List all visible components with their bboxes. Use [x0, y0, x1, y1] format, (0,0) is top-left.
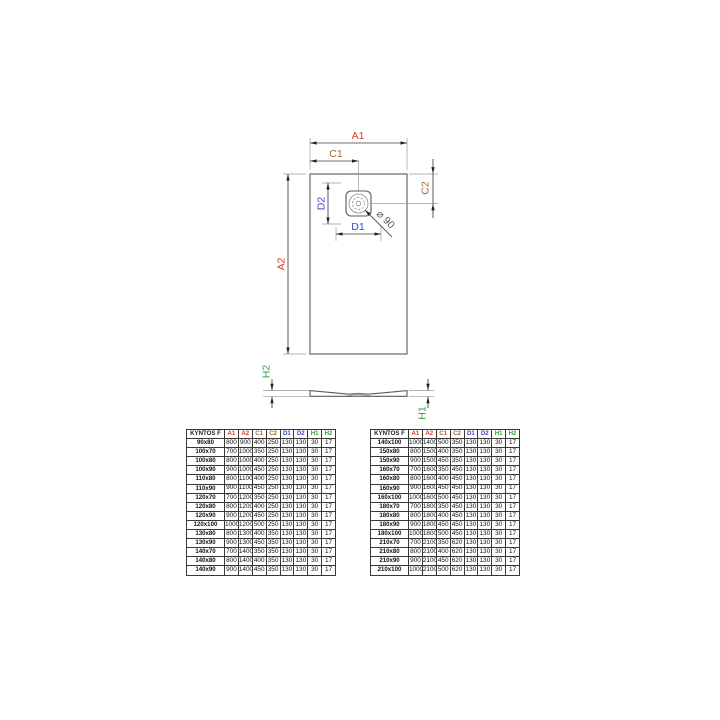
spec-row-180x100: 180x100100018005004501301303017 — [371, 530, 520, 539]
value-cell-d1: 130 — [464, 466, 478, 475]
value-cell-c1: 400 — [252, 475, 266, 484]
value-cell-h1: 30 — [308, 502, 322, 511]
value-cell-a2: 1400 — [422, 439, 436, 448]
value-cell-d2: 130 — [294, 502, 308, 511]
value-cell-a1: 800 — [225, 475, 239, 484]
value-cell-h2: 17 — [506, 493, 520, 502]
value-cell-h1: 30 — [308, 511, 322, 520]
dim-label-h1: H1 — [417, 406, 429, 420]
value-cell-a1: 700 — [225, 493, 239, 502]
dim-label-a1: A1 — [352, 130, 365, 142]
value-cell-d2: 130 — [478, 493, 492, 502]
value-cell-c1: 400 — [436, 511, 450, 520]
side-view: H2 H1 — [261, 365, 434, 420]
size-cell: 140x70 — [187, 548, 225, 557]
spec-row-100x90: 100x9090010004502501301303017 — [187, 466, 336, 475]
column-header-h1: H1 — [308, 430, 322, 439]
value-cell-c2: 450 — [450, 502, 464, 511]
value-cell-d1: 130 — [464, 475, 478, 484]
value-cell-h2: 17 — [506, 502, 520, 511]
value-cell-a1: 900 — [225, 511, 239, 520]
value-cell-c1: 350 — [252, 448, 266, 457]
spec-row-120x100: 120x100100012005002501301303017 — [187, 520, 336, 529]
value-cell-d1: 130 — [280, 511, 294, 520]
value-cell-c1: 500 — [436, 530, 450, 539]
dim-h2: H2 — [261, 365, 310, 408]
column-header-a1: A1 — [409, 430, 423, 439]
value-cell-h2: 17 — [506, 566, 520, 575]
value-cell-a1: 900 — [409, 484, 423, 493]
dim-label-d2: D2 — [316, 197, 328, 211]
value-cell-c2: 250 — [266, 448, 280, 457]
spec-row-100x70: 100x7070010003502501301303017 — [187, 448, 336, 457]
spec-table-left: KYNTOS FA1A2C1C2D1D2H1H290x8080090040025… — [186, 429, 336, 576]
value-cell-d2: 130 — [294, 539, 308, 548]
value-cell-d1: 130 — [464, 493, 478, 502]
value-cell-c1: 400 — [252, 457, 266, 466]
size-cell: 140x90 — [187, 566, 225, 575]
value-cell-h1: 30 — [308, 457, 322, 466]
value-cell-c2: 250 — [266, 439, 280, 448]
spec-header-row: KYNTOS FA1A2C1C2D1D2H1H2 — [371, 430, 520, 439]
size-cell: 160x100 — [371, 493, 409, 502]
dim-c2: C2 — [409, 159, 438, 218]
value-cell-d2: 130 — [294, 484, 308, 493]
value-cell-a2: 1000 — [238, 466, 252, 475]
value-cell-a1: 700 — [409, 466, 423, 475]
value-cell-d2: 130 — [294, 439, 308, 448]
value-cell-c2: 350 — [266, 557, 280, 566]
value-cell-c1: 350 — [436, 502, 450, 511]
value-cell-a1: 1000 — [409, 566, 423, 575]
value-cell-c2: 250 — [266, 511, 280, 520]
value-cell-c2: 450 — [450, 511, 464, 520]
value-cell-a2: 1400 — [238, 566, 252, 575]
size-cell: 100x70 — [187, 448, 225, 457]
value-cell-a1: 1000 — [409, 493, 423, 502]
value-cell-a1: 700 — [225, 448, 239, 457]
value-cell-h1: 30 — [492, 557, 506, 566]
value-cell-d1: 130 — [280, 466, 294, 475]
value-cell-a1: 800 — [409, 511, 423, 520]
value-cell-a1: 700 — [409, 539, 423, 548]
value-cell-h1: 30 — [308, 493, 322, 502]
value-cell-h1: 30 — [492, 475, 506, 484]
value-cell-c2: 620 — [450, 548, 464, 557]
dim-label-c2: C2 — [420, 181, 432, 195]
spec-row-110x90: 110x9090011004502501301303017 — [187, 484, 336, 493]
value-cell-h1: 30 — [308, 566, 322, 575]
value-cell-a1: 800 — [225, 530, 239, 539]
value-cell-h1: 30 — [492, 484, 506, 493]
value-cell-h1: 30 — [492, 548, 506, 557]
value-cell-d2: 130 — [478, 511, 492, 520]
value-cell-d2: 130 — [478, 502, 492, 511]
value-cell-h1: 30 — [308, 466, 322, 475]
value-cell-c2: 250 — [266, 520, 280, 529]
value-cell-a1: 1000 — [225, 520, 239, 529]
value-cell-d2: 130 — [478, 557, 492, 566]
value-cell-d1: 130 — [464, 557, 478, 566]
value-cell-h2: 17 — [322, 484, 336, 493]
value-cell-a2: 1600 — [422, 493, 436, 502]
size-cell: 180x70 — [371, 502, 409, 511]
value-cell-h2: 17 — [506, 520, 520, 529]
value-cell-d1: 130 — [464, 548, 478, 557]
value-cell-c1: 400 — [252, 439, 266, 448]
value-cell-a2: 1100 — [238, 484, 252, 493]
value-cell-h1: 30 — [492, 530, 506, 539]
column-header-d1: D1 — [464, 430, 478, 439]
spec-row-120x70: 120x7070012003502501301303017 — [187, 493, 336, 502]
column-header-kyntos-f: KYNTOS F — [187, 430, 225, 439]
size-cell: 130x80 — [187, 530, 225, 539]
value-cell-h2: 17 — [506, 475, 520, 484]
value-cell-a1: 900 — [409, 520, 423, 529]
column-header-h2: H2 — [506, 430, 520, 439]
value-cell-h1: 30 — [308, 548, 322, 557]
value-cell-c2: 250 — [266, 493, 280, 502]
value-cell-h2: 17 — [322, 493, 336, 502]
size-cell: 180x100 — [371, 530, 409, 539]
size-cell: 120x80 — [187, 502, 225, 511]
value-cell-a1: 900 — [225, 484, 239, 493]
value-cell-d2: 130 — [478, 466, 492, 475]
size-cell: 120x90 — [187, 511, 225, 520]
value-cell-d1: 130 — [280, 448, 294, 457]
value-cell-c1: 450 — [436, 484, 450, 493]
value-cell-a2: 2100 — [422, 557, 436, 566]
spec-row-140x70: 140x7070014003503501301303017 — [187, 548, 336, 557]
value-cell-h1: 30 — [492, 457, 506, 466]
value-cell-d2: 130 — [478, 539, 492, 548]
value-cell-h2: 17 — [506, 539, 520, 548]
value-cell-h2: 17 — [322, 548, 336, 557]
value-cell-a1: 800 — [225, 557, 239, 566]
spec-row-210x70: 210x7070021003506201301303017 — [371, 539, 520, 548]
value-cell-d1: 130 — [280, 520, 294, 529]
value-cell-c1: 450 — [252, 484, 266, 493]
value-cell-d1: 130 — [464, 484, 478, 493]
value-cell-a2: 1500 — [422, 457, 436, 466]
dim-label-d1: D1 — [351, 221, 365, 233]
value-cell-d2: 130 — [294, 566, 308, 575]
value-cell-d2: 130 — [478, 530, 492, 539]
value-cell-h2: 17 — [322, 439, 336, 448]
value-cell-h1: 30 — [308, 484, 322, 493]
value-cell-d2: 130 — [478, 484, 492, 493]
value-cell-d1: 130 — [464, 457, 478, 466]
spec-row-180x80: 180x8080018004004501301303017 — [371, 511, 520, 520]
value-cell-a1: 900 — [409, 457, 423, 466]
spec-row-120x80: 120x8080012004002501301303017 — [187, 502, 336, 511]
spec-row-140x90: 140x9090014004503501301303017 — [187, 566, 336, 575]
dim-a2: A2 — [276, 174, 306, 354]
value-cell-h2: 17 — [322, 448, 336, 457]
spec-header-row: KYNTOS FA1A2C1C2D1D2H1H2 — [187, 430, 336, 439]
spec-row-140x100: 140x100100014005003501301303017 — [371, 439, 520, 448]
value-cell-h2: 17 — [322, 502, 336, 511]
value-cell-c1: 350 — [436, 466, 450, 475]
top-view: A1 C1 C2 — [276, 130, 438, 354]
spec-row-180x90: 180x9090018004504501301303017 — [371, 520, 520, 529]
value-cell-h1: 30 — [308, 475, 322, 484]
dim-h1: H1 — [409, 379, 434, 420]
value-cell-c1: 400 — [436, 475, 450, 484]
dim-c1: C1 — [310, 148, 359, 161]
value-cell-a2: 1800 — [422, 520, 436, 529]
value-cell-a1: 700 — [409, 502, 423, 511]
value-cell-c1: 400 — [252, 530, 266, 539]
spec-table-right: KYNTOS FA1A2C1C2D1D2H1H2140x100100014005… — [370, 429, 520, 576]
spec-row-160x70: 160x7070016003504501301303017 — [371, 466, 520, 475]
size-cell: 150x90 — [371, 457, 409, 466]
value-cell-d1: 130 — [464, 448, 478, 457]
value-cell-h2: 17 — [506, 439, 520, 448]
value-cell-a2: 1200 — [238, 502, 252, 511]
value-cell-a2: 2100 — [422, 539, 436, 548]
spec-row-130x80: 130x8080013004003501301303017 — [187, 530, 336, 539]
value-cell-h1: 30 — [492, 539, 506, 548]
spec-row-210x90: 210x9090021004506201301303017 — [371, 557, 520, 566]
value-cell-a1: 900 — [225, 466, 239, 475]
value-cell-h2: 17 — [506, 557, 520, 566]
value-cell-a2: 1200 — [238, 520, 252, 529]
value-cell-a2: 1000 — [238, 448, 252, 457]
value-cell-c2: 350 — [266, 539, 280, 548]
value-cell-h1: 30 — [308, 439, 322, 448]
shower-tray-spec-sheet: A1 C1 C2 — [0, 0, 720, 720]
value-cell-c1: 500 — [436, 493, 450, 502]
value-cell-c2: 350 — [450, 457, 464, 466]
column-header-kyntos-f: KYNTOS F — [371, 430, 409, 439]
spec-row-140x80: 140x8080014004003501301303017 — [187, 557, 336, 566]
value-cell-a2: 1400 — [238, 557, 252, 566]
value-cell-c2: 450 — [450, 466, 464, 475]
size-cell: 160x90 — [371, 484, 409, 493]
value-cell-h2: 17 — [506, 457, 520, 466]
value-cell-h2: 17 — [322, 520, 336, 529]
size-cell: 180x80 — [371, 511, 409, 520]
value-cell-a2: 1100 — [238, 475, 252, 484]
value-cell-h1: 30 — [492, 511, 506, 520]
value-cell-c1: 500 — [436, 566, 450, 575]
value-cell-d1: 130 — [464, 566, 478, 575]
spec-row-90x80: 90x808009004002501301303017 — [187, 439, 336, 448]
spec-row-130x90: 130x9090013004503501301303017 — [187, 539, 336, 548]
value-cell-c2: 450 — [450, 493, 464, 502]
value-cell-d2: 130 — [294, 457, 308, 466]
value-cell-c1: 400 — [252, 557, 266, 566]
value-cell-c1: 350 — [252, 493, 266, 502]
column-header-d2: D2 — [294, 430, 308, 439]
value-cell-c2: 350 — [450, 439, 464, 448]
value-cell-d1: 130 — [280, 493, 294, 502]
value-cell-a2: 1300 — [238, 530, 252, 539]
size-cell: 140x100 — [371, 439, 409, 448]
value-cell-h2: 17 — [322, 511, 336, 520]
value-cell-c2: 450 — [450, 530, 464, 539]
spec-row-180x70: 180x7070018003504501301303017 — [371, 502, 520, 511]
dimension-diagram: A1 C1 C2 — [0, 0, 720, 720]
value-cell-h2: 17 — [322, 530, 336, 539]
value-cell-h1: 30 — [308, 539, 322, 548]
size-cell: 100x90 — [187, 466, 225, 475]
value-cell-h1: 30 — [492, 439, 506, 448]
value-cell-h2: 17 — [506, 548, 520, 557]
value-cell-h2: 17 — [506, 466, 520, 475]
value-cell-a2: 1400 — [238, 548, 252, 557]
spec-row-150x80: 150x8080015004003501301303017 — [371, 448, 520, 457]
size-cell: 120x100 — [187, 520, 225, 529]
value-cell-c2: 250 — [266, 475, 280, 484]
spec-row-110x80: 110x8080011004002501301303017 — [187, 475, 336, 484]
value-cell-c2: 250 — [266, 502, 280, 511]
value-cell-c1: 400 — [436, 448, 450, 457]
column-header-h2: H2 — [322, 430, 336, 439]
value-cell-d2: 130 — [294, 520, 308, 529]
value-cell-h1: 30 — [492, 520, 506, 529]
value-cell-h1: 30 — [308, 448, 322, 457]
value-cell-h1: 30 — [492, 502, 506, 511]
value-cell-c1: 450 — [252, 566, 266, 575]
column-header-a1: A1 — [225, 430, 239, 439]
value-cell-d2: 130 — [478, 457, 492, 466]
column-header-d1: D1 — [280, 430, 294, 439]
value-cell-a1: 900 — [225, 566, 239, 575]
spec-row-160x80: 160x8080016004004501301303017 — [371, 475, 520, 484]
value-cell-c2: 250 — [266, 484, 280, 493]
value-cell-a2: 1300 — [238, 539, 252, 548]
value-cell-a2: 2100 — [422, 566, 436, 575]
value-cell-a1: 800 — [409, 475, 423, 484]
value-cell-d1: 130 — [464, 530, 478, 539]
value-cell-c2: 350 — [450, 448, 464, 457]
value-cell-h2: 17 — [506, 511, 520, 520]
size-cell: 210x80 — [371, 548, 409, 557]
value-cell-a1: 900 — [409, 557, 423, 566]
value-cell-a1: 1000 — [409, 530, 423, 539]
value-cell-d2: 130 — [294, 466, 308, 475]
column-header-c1: C1 — [436, 430, 450, 439]
column-header-a2: A2 — [238, 430, 252, 439]
value-cell-d2: 130 — [478, 448, 492, 457]
value-cell-d1: 130 — [464, 502, 478, 511]
value-cell-c1: 450 — [252, 511, 266, 520]
size-cell: 160x80 — [371, 475, 409, 484]
value-cell-h2: 17 — [322, 466, 336, 475]
value-cell-h1: 30 — [492, 493, 506, 502]
value-cell-c1: 450 — [252, 466, 266, 475]
value-cell-a2: 1000 — [238, 457, 252, 466]
value-cell-d1: 130 — [464, 439, 478, 448]
value-cell-d1: 130 — [280, 566, 294, 575]
spec-row-100x80: 100x8080010004002501301303017 — [187, 457, 336, 466]
value-cell-d2: 130 — [294, 475, 308, 484]
value-cell-c2: 250 — [266, 466, 280, 475]
size-cell: 150x80 — [371, 448, 409, 457]
value-cell-c1: 500 — [436, 439, 450, 448]
value-cell-a1: 800 — [225, 457, 239, 466]
value-cell-a2: 1800 — [422, 502, 436, 511]
value-cell-c1: 400 — [436, 548, 450, 557]
size-cell: 160x70 — [371, 466, 409, 475]
value-cell-h2: 17 — [322, 557, 336, 566]
value-cell-d2: 130 — [294, 530, 308, 539]
value-cell-d2: 130 — [294, 548, 308, 557]
dim-label-c1: C1 — [329, 148, 343, 160]
value-cell-a2: 1600 — [422, 484, 436, 493]
value-cell-a1: 800 — [225, 502, 239, 511]
value-cell-d1: 130 — [280, 539, 294, 548]
column-header-c2: C2 — [266, 430, 280, 439]
value-cell-d1: 130 — [280, 484, 294, 493]
value-cell-a2: 2100 — [422, 548, 436, 557]
value-cell-d1: 130 — [280, 439, 294, 448]
value-cell-a2: 1200 — [238, 511, 252, 520]
column-header-d2: D2 — [478, 430, 492, 439]
value-cell-h1: 30 — [492, 566, 506, 575]
spec-row-210x80: 210x8080021004006201301303017 — [371, 548, 520, 557]
value-cell-c2: 450 — [450, 520, 464, 529]
value-cell-c2: 350 — [266, 566, 280, 575]
dim-label-a2: A2 — [276, 257, 288, 270]
value-cell-c1: 350 — [252, 548, 266, 557]
size-cell: 210x70 — [371, 539, 409, 548]
value-cell-d1: 130 — [464, 539, 478, 548]
value-cell-a2: 1600 — [422, 466, 436, 475]
size-cell: 210x90 — [371, 557, 409, 566]
value-cell-d2: 130 — [478, 566, 492, 575]
value-cell-d1: 130 — [464, 511, 478, 520]
value-cell-d1: 130 — [280, 457, 294, 466]
value-cell-h1: 30 — [492, 448, 506, 457]
spec-row-210x100: 210x100100021005006201301303017 — [371, 566, 520, 575]
value-cell-h2: 17 — [322, 475, 336, 484]
column-header-c2: C2 — [450, 430, 464, 439]
size-cell: 110x90 — [187, 484, 225, 493]
value-cell-d2: 130 — [478, 548, 492, 557]
value-cell-d1: 130 — [280, 502, 294, 511]
value-cell-c2: 250 — [266, 457, 280, 466]
value-cell-a2: 1800 — [422, 530, 436, 539]
value-cell-c1: 350 — [436, 539, 450, 548]
value-cell-h2: 17 — [506, 448, 520, 457]
value-cell-h2: 17 — [322, 539, 336, 548]
value-cell-h1: 30 — [308, 520, 322, 529]
value-cell-c2: 350 — [266, 548, 280, 557]
value-cell-c2: 450 — [450, 475, 464, 484]
dim-label-h2: H2 — [261, 365, 273, 379]
value-cell-a2: 1800 — [422, 511, 436, 520]
size-cell: 130x90 — [187, 539, 225, 548]
value-cell-h2: 17 — [322, 566, 336, 575]
size-cell: 100x80 — [187, 457, 225, 466]
column-header-a2: A2 — [422, 430, 436, 439]
value-cell-c2: 620 — [450, 566, 464, 575]
size-cell: 110x80 — [187, 475, 225, 484]
value-cell-c1: 450 — [436, 457, 450, 466]
size-cell: 90x80 — [187, 439, 225, 448]
value-cell-a2: 1500 — [422, 448, 436, 457]
column-header-h1: H1 — [492, 430, 506, 439]
value-cell-h1: 30 — [492, 466, 506, 475]
value-cell-a1: 800 — [225, 439, 239, 448]
value-cell-c1: 500 — [252, 520, 266, 529]
value-cell-d1: 130 — [280, 557, 294, 566]
value-cell-c2: 350 — [266, 530, 280, 539]
value-cell-h2: 17 — [506, 484, 520, 493]
